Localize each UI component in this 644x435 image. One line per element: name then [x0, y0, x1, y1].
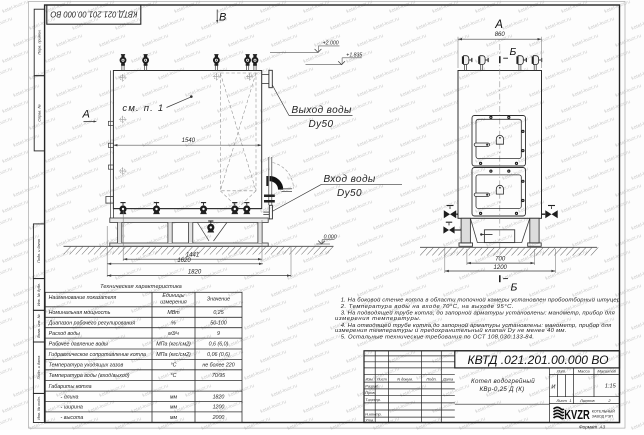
svg-text:Формат: Формат — [579, 425, 597, 430]
svg-text:Утв.: Утв. — [365, 418, 374, 423]
svg-text:Масштаб: Масштаб — [597, 369, 616, 374]
svg-text:КВТД.021.201.00.000 ВО: КВТД.021.201.00.000 ВО — [50, 9, 138, 18]
svg-text:И: И — [551, 384, 555, 390]
svg-text:Лит.: Лит. — [556, 369, 566, 374]
svg-text:м3/ч: м3/ч — [168, 331, 179, 337]
svg-text:0,06 (0,6): 0,06 (0,6) — [207, 352, 230, 358]
svg-text:Подп. и дата: Подп. и дата — [37, 356, 41, 380]
svg-text:А: А — [494, 19, 503, 31]
svg-text:МПа (кгс/см2): МПа (кгс/см2) — [156, 352, 191, 358]
svg-text:- длина: - длина — [61, 394, 79, 400]
svg-text:0,6 (6,0): 0,6 (6,0) — [209, 342, 229, 348]
svg-text:Гидравлическое сопротивление к: Гидравлическое сопротивление котла — [49, 352, 146, 358]
svg-text:КВр-0,25 Д (К): КВр-0,25 Д (К) — [479, 386, 524, 393]
svg-text:ЗАВОД РЭП: ЗАВОД РЭП — [592, 414, 613, 418]
svg-text:1200: 1200 — [494, 265, 508, 271]
svg-text:Расход воды: Расход воды — [49, 331, 80, 337]
svg-text:Наименование показателя: Наименование показателя — [49, 295, 117, 301]
svg-text:Справ. №: Справ. № — [38, 104, 42, 121]
svg-text:- высота: - высота — [61, 415, 84, 421]
svg-text:1200: 1200 — [213, 405, 225, 411]
svg-text:1:15: 1:15 — [605, 384, 617, 390]
svg-text:измерения температуры.: измерения температуры. — [335, 316, 422, 322]
svg-text:Выход воды: Выход воды — [292, 105, 352, 116]
svg-text:- ширина: - ширина — [61, 405, 83, 411]
svg-text:Б: Б — [511, 281, 518, 293]
svg-text:Dy50: Dy50 — [309, 119, 334, 130]
svg-text:Рабочее давление воды: Рабочее давление воды — [49, 342, 108, 348]
svg-text:Вход воды: Вход воды — [324, 174, 376, 185]
svg-text:50-100: 50-100 — [210, 321, 227, 327]
svg-text:см. п. 1: см. п. 1 — [122, 103, 164, 114]
svg-text:1: 1 — [569, 398, 571, 403]
svg-text:мм: мм — [170, 415, 178, 421]
svg-text:А: А — [82, 109, 90, 121]
svg-text:860: 860 — [495, 32, 506, 38]
svg-text:измерения: измерения — [160, 300, 187, 306]
svg-text:Температура воды (вход/выход): Температура воды (вход/выход) — [49, 373, 130, 379]
svg-text:1820: 1820 — [213, 394, 225, 400]
svg-text:Лист: Лист — [556, 398, 568, 403]
svg-text:9: 9 — [217, 331, 220, 337]
svg-text:KVZR: KVZR — [564, 408, 590, 422]
svg-text:В: В — [219, 11, 226, 23]
svg-text:мм: мм — [170, 405, 178, 411]
svg-text:+2.000: +2.000 — [323, 41, 339, 47]
svg-text:0.000: 0.000 — [324, 235, 337, 241]
svg-text:Единицы: Единицы — [162, 293, 184, 299]
svg-text:Подп.: Подп. — [426, 376, 436, 381]
svg-text:700: 700 — [495, 257, 506, 263]
svg-text:мм: мм — [170, 394, 178, 400]
svg-text:Лист: Лист — [376, 376, 388, 381]
svg-text:Техническая характеристика: Техническая характеристика — [100, 284, 182, 290]
svg-text:Дата: Дата — [442, 376, 454, 381]
svg-text:Масса: Масса — [578, 369, 591, 374]
svg-text:1820: 1820 — [188, 270, 202, 276]
svg-text:2000: 2000 — [212, 415, 225, 421]
svg-text:А3: А3 — [599, 425, 606, 430]
svg-text:Котел водогрейный: Котел водогрейный — [471, 378, 535, 385]
svg-text:1. На боковой стенке котла в: 1. На боковой стенке котла в области топ… — [341, 297, 621, 304]
svg-text:°С: °С — [171, 363, 177, 369]
svg-text:Габариты котла: Габариты котла — [49, 384, 92, 390]
svg-text:Температура уходящих газов: Температура уходящих газов — [49, 363, 124, 369]
svg-text:1540: 1540 — [182, 138, 196, 144]
svg-text:2. Температура воды на входе: 2. Температура воды на входе 70°С, на вы… — [340, 304, 514, 310]
svg-text:Подп. и дата: Подп. и дата — [37, 239, 41, 263]
svg-text:5. Остальные технические треб: 5. Остальные технические требования по О… — [341, 335, 535, 341]
svg-text:70/95: 70/95 — [212, 373, 225, 379]
svg-text:КОТЕЛЬНЫЙ: КОТЕЛЬНЫЙ — [592, 409, 615, 413]
svg-text:+1.835: +1.835 — [346, 53, 362, 59]
svg-text:Номинальная мощность: Номинальная мощность — [49, 310, 111, 316]
svg-text:Взам. инв. №: Взам. инв. № — [37, 314, 41, 337]
svg-text:не более 220: не более 220 — [202, 363, 234, 369]
svg-text:Инв. № подл.: Инв. № подл. — [37, 396, 41, 420]
svg-text:Т.контр.: Т.контр. — [365, 397, 381, 402]
svg-text:%: % — [171, 321, 176, 327]
svg-text:N докум.: N докум. — [397, 376, 413, 381]
svg-text:МПа (кгс/см2): МПа (кгс/см2) — [156, 342, 191, 348]
svg-text:Листов: Листов — [579, 398, 595, 403]
svg-text:Пров.: Пров. — [365, 390, 375, 395]
svg-text:Инв. № дубл.: Инв. № дубл. — [37, 283, 41, 306]
svg-text:Значение: Значение — [207, 297, 230, 303]
svg-text:1620: 1620 — [177, 258, 191, 264]
svg-text:Изм.: Изм. — [365, 376, 373, 381]
svg-text:Разраб.: Разраб. — [365, 383, 379, 388]
svg-text:измерения температуры и предох: измерения температуры и предохранительны… — [335, 327, 567, 334]
svg-text:МВт: МВт — [167, 310, 180, 316]
svg-text:Н.контр.: Н.контр. — [365, 412, 381, 417]
svg-text:0,25: 0,25 — [213, 310, 223, 316]
svg-text:°С: °С — [171, 373, 177, 379]
svg-text:Диапазон рабочего регулировани: Диапазон рабочего регулирования — [48, 321, 136, 327]
svg-text:Dy50: Dy50 — [337, 188, 362, 199]
svg-text:Перв. примен.: Перв. примен. — [38, 29, 42, 54]
svg-text:КВТД .021.201.00.000 ВО: КВТД .021.201.00.000 ВО — [468, 353, 609, 367]
svg-text:Б: Б — [510, 46, 517, 58]
